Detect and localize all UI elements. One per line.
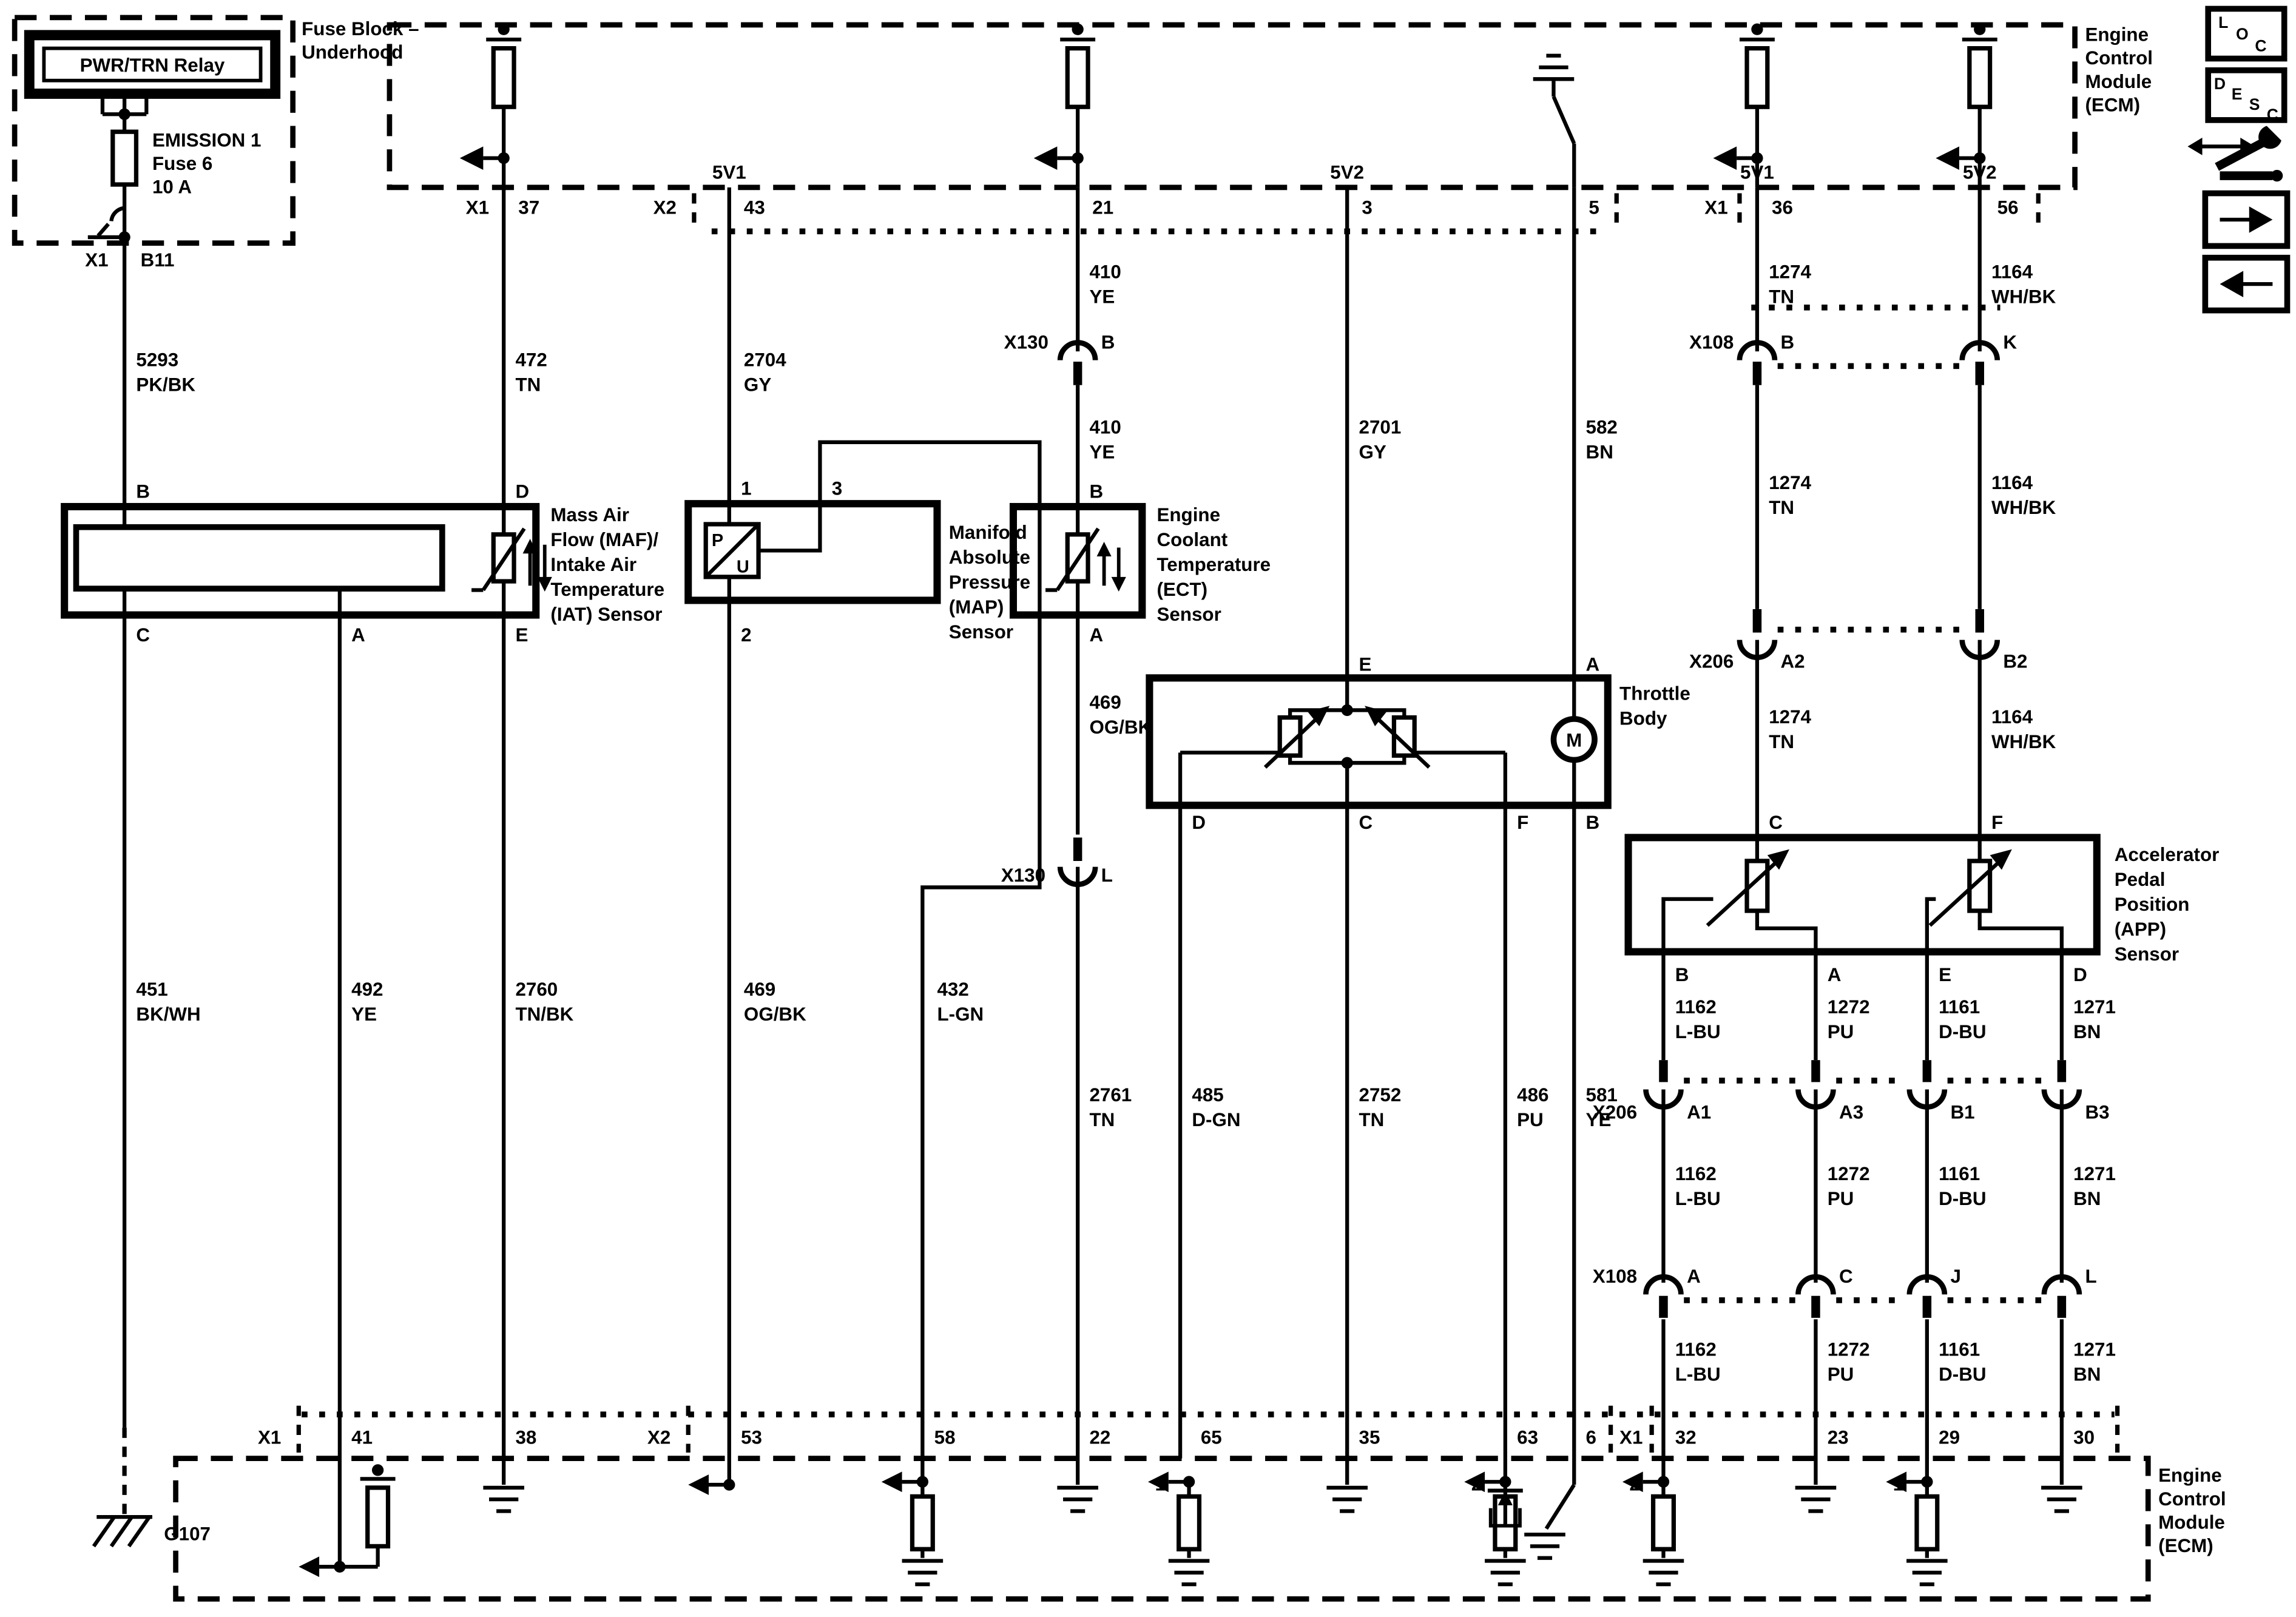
pressure-transducer-icon: P U <box>706 524 758 577</box>
desc-s: S <box>2249 95 2260 113</box>
x206-pin-b3: B3 <box>2085 1102 2109 1123</box>
x108-pin-l: L <box>2085 1266 2096 1287</box>
label-581: 581 <box>1586 1084 1618 1106</box>
fuse-label-line1: EMISSION 1 <box>152 129 261 150</box>
loc-l: L <box>2218 13 2228 32</box>
ecm-ground-38 <box>483 1488 524 1511</box>
rail-5v2-right: 5V2 <box>1963 161 1997 183</box>
map-sensor: P U 1 3 2 Manifold Absolute Pressure (MA… <box>688 478 1030 646</box>
label-2760-color: TN/BK <box>515 1004 573 1025</box>
ecm-bot-pin22: 22 <box>1089 1426 1110 1448</box>
maf-pin-a: A <box>351 624 365 646</box>
label-1272a-color: PU <box>1828 1021 1854 1042</box>
x206-name: X206 <box>1689 650 1734 672</box>
label-2760: 2760 <box>515 979 558 1000</box>
throttle-pin-a: A <box>1586 653 1600 675</box>
x130-b-name: X130 <box>1004 331 1048 353</box>
ecm-bot-pin65: 65 <box>1201 1426 1222 1448</box>
ecm-bot-x2: X2 <box>647 1426 670 1448</box>
app-name-2: Pedal <box>2115 869 2166 890</box>
map-name-5: Sensor <box>949 621 1013 643</box>
throttle-pin-d: D <box>1192 812 1206 833</box>
label-1162c-color: L-BU <box>1675 1364 1721 1385</box>
label-1272c-color: PU <box>1828 1364 1854 1385</box>
tps-potentiometers-icon <box>1180 704 1505 769</box>
ect-sensor: B A Engine Coolant Temperature (ECT) Sen… <box>1013 481 1271 646</box>
desc-button[interactable]: D E S C <box>2208 70 2284 124</box>
map-pin-3: 3 <box>832 478 842 499</box>
label-1162a: 1162 <box>1675 996 1717 1018</box>
g107-ground: G107 <box>93 1428 211 1546</box>
ecm-5v-feed-21 <box>1034 24 1095 187</box>
tools-icon[interactable] <box>2187 126 2283 182</box>
label-492-color: YE <box>351 1004 377 1025</box>
app-potentiometer-1-icon <box>1663 849 1815 952</box>
label-581-color: YE <box>1586 1109 1612 1130</box>
label-1162b-color: L-BU <box>1675 1188 1721 1209</box>
ecm-bot-pin30: 30 <box>2073 1426 2095 1448</box>
ecm-input-32: 2 <box>1622 1471 1684 1584</box>
throttle-motor-icon: M <box>1553 719 1595 760</box>
label-1271c-color: BN <box>2073 1364 2101 1385</box>
x206-pin-a2: A2 <box>1781 650 1805 672</box>
app-sensor: C F B A E D Accelerator Pedal Position (… <box>1629 812 2220 985</box>
app-pin-e: E <box>1939 964 1951 985</box>
ect-thermistor-icon <box>1045 528 1126 592</box>
label-1271a: 1271 <box>2073 996 2116 1018</box>
label-472: 472 <box>515 349 547 370</box>
fuse-label-line3: 10 A <box>152 177 192 198</box>
x130-b-connector: X130 B <box>1004 331 1115 385</box>
ecm-top-pin3: 3 <box>1362 197 1372 218</box>
throttle-pin-f: F <box>1517 812 1528 833</box>
label-1164a: 1164 <box>1991 262 2033 283</box>
x108-pin-k: K <box>2003 331 2017 353</box>
app-name-1: Accelerator <box>2115 844 2220 865</box>
label-1164c-color: WH/BK <box>1991 731 2056 752</box>
map-name-3: Pressure <box>949 572 1030 593</box>
label-1161a: 1161 <box>1939 996 1980 1018</box>
desc-c: C <box>2267 106 2278 124</box>
throttle-box <box>1149 678 1607 805</box>
label-1161c-color: D-BU <box>1939 1364 1986 1385</box>
desc-d: D <box>2214 75 2226 93</box>
emission1-fuse-icon <box>113 132 137 184</box>
loc-c: C <box>2255 36 2266 55</box>
label-2761-color: TN <box>1089 1109 1115 1130</box>
label-432: 432 <box>937 979 968 1000</box>
relay-terminal-icon <box>103 93 146 132</box>
label-469-ect-color: OG/BK <box>1089 717 1152 738</box>
label-1161a-color: D-BU <box>1939 1021 1986 1042</box>
app-pin-c: C <box>1769 812 1783 833</box>
label-410b: 410 <box>1089 416 1121 437</box>
x130-l-pin: L <box>1101 865 1113 886</box>
ecm-bot-pin32: 32 <box>1675 1426 1697 1448</box>
ecm-bot-pin23: 23 <box>1828 1426 1849 1448</box>
maf-iat-sensor: B D C A E Mass Air Flow (MAF)/ Intake Ai… <box>64 481 664 646</box>
label-410a: 410 <box>1089 262 1121 283</box>
fuse-block-pin-label: B11 <box>141 249 175 271</box>
label-1274c-color: TN <box>1769 731 1794 752</box>
ecm-input-29: 1 <box>1886 1471 1947 1584</box>
label-469-ect: 469 <box>1089 692 1121 713</box>
ecm-input-65: 1 <box>1148 1471 1209 1584</box>
x206-pin-b1: B1 <box>1950 1102 1974 1123</box>
ecm-bot-pin58: 58 <box>934 1426 956 1448</box>
ecm-bottom-name-2: Control <box>2158 1488 2226 1510</box>
label-2752-color: TN <box>1359 1109 1385 1130</box>
label-485: 485 <box>1192 1084 1223 1106</box>
label-5293: 5293 <box>136 349 178 370</box>
x206-low-connector: X206 A1 A3 B1 B3 <box>1593 1060 2110 1123</box>
ecm-top-name-1: Engine <box>2085 24 2149 46</box>
ect-name-5: Sensor <box>1156 604 1221 625</box>
label-451: 451 <box>136 979 167 1000</box>
map-pin-1: 1 <box>741 478 751 499</box>
iat-thermistor-icon <box>471 507 552 592</box>
ecm-top-box <box>390 25 2075 187</box>
ecm-top-pin36: 36 <box>1772 197 1793 218</box>
ecm-bot-pin38: 38 <box>515 1426 536 1448</box>
app-pin-a: A <box>1828 964 1842 985</box>
label-2704: 2704 <box>744 349 786 370</box>
ecm-top-pin43: 43 <box>744 197 765 218</box>
maf-pin-e: E <box>515 624 528 646</box>
g107-label: G107 <box>164 1524 211 1545</box>
label-451-color: BK/WH <box>136 1004 200 1025</box>
label-2701-color: GY <box>1359 441 1386 462</box>
app-name-4: (APP) <box>2115 919 2166 940</box>
map-name-4: (MAP) <box>949 596 1004 618</box>
x130-l-connector: X130 L <box>1001 837 1113 885</box>
x130-l-name: X130 <box>1001 865 1045 886</box>
label-1161c: 1161 <box>1939 1339 1980 1360</box>
ecm-ground-switch-top-icon <box>1533 56 1575 187</box>
ecm-top-pin56: 56 <box>1997 197 2019 218</box>
label-1164b-color: WH/BK <box>1991 497 2056 518</box>
ecm-ground-35 <box>1326 1488 1368 1511</box>
ecm-bot-pin6: 6 <box>1586 1426 1596 1448</box>
x108-pin-c: C <box>1839 1266 1853 1287</box>
label-1162b: 1162 <box>1675 1163 1717 1184</box>
label-2704-color: GY <box>744 374 771 395</box>
ecm-input-58 <box>882 1471 943 1584</box>
x108-pin-j: J <box>1950 1266 1960 1287</box>
ect-name-1: Engine <box>1156 504 1220 525</box>
ecm-ground-23 <box>1795 1488 1837 1511</box>
ecm-bot-pin29: 29 <box>1939 1426 1960 1448</box>
x206-pin-b2: B2 <box>2003 650 2027 672</box>
label-472-color: TN <box>515 374 541 395</box>
throttle-name-2: Body <box>1619 708 1667 729</box>
map-name-2: Absolute <box>949 547 1030 568</box>
maf-name-3: Intake Air <box>550 554 636 575</box>
loc-o: O <box>2236 25 2249 43</box>
wire-labels: 5293PK/BK 472TN 2704GY 410YE 410YE 2701G… <box>136 262 2116 1385</box>
label-432-color: L-GN <box>937 1004 984 1025</box>
label-2761: 2761 <box>1089 1084 1132 1106</box>
motor-m-letter: M <box>1566 730 1582 751</box>
ecm-bottom-name-1: Engine <box>2158 1465 2222 1486</box>
ecm-input-63: 2 <box>1464 1471 1525 1584</box>
label-1271b-color: BN <box>2073 1188 2101 1209</box>
ecm-top-name-4: (ECM) <box>2085 94 2140 115</box>
fuse-label-line2: Fuse 6 <box>152 153 212 174</box>
ecm-ground-22 <box>1057 1488 1098 1511</box>
app-name-5: Sensor <box>2115 944 2179 965</box>
ecm-top-name-2: Control <box>2085 47 2152 69</box>
maf-pin-b: B <box>136 481 150 502</box>
label-1271c: 1271 <box>2073 1339 2116 1360</box>
maf-name-5: (IAT) Sensor <box>550 604 662 625</box>
label-1162c: 1162 <box>1675 1339 1717 1360</box>
fuse-block-conn-label: X1 <box>85 249 108 271</box>
ecm-top-x1: X1 <box>466 197 489 218</box>
rail-5v1-left: 5V1 <box>712 161 746 183</box>
label-410b-color: YE <box>1089 441 1115 462</box>
app-pin-d: D <box>2073 964 2087 985</box>
ect-pin-b: B <box>1089 481 1103 502</box>
label-2752: 2752 <box>1359 1084 1402 1106</box>
label-492: 492 <box>351 979 383 1000</box>
throttle-body: Throttle Body M E A D C F B <box>1149 653 1690 833</box>
x108-low-connector: X108 A C J L <box>1593 1266 2097 1318</box>
ect-name-4: (ECT) <box>1156 579 1207 600</box>
ecm-top-name-3: Module <box>2085 71 2152 92</box>
map-u-letter: U <box>737 558 749 577</box>
maf-pin-c: C <box>136 624 150 646</box>
ecm-bot-pin63: 63 <box>1517 1426 1538 1448</box>
ecm-bottom-name-3: Module <box>2158 1511 2225 1533</box>
ecm-bot-pin41: 41 <box>351 1426 373 1448</box>
ecm-bot-x1: X1 <box>258 1426 281 1448</box>
ecm-bot-pin35: 35 <box>1359 1426 1380 1448</box>
ecm-input-41 <box>299 1464 395 1577</box>
maf-name-1: Mass Air <box>550 504 629 525</box>
x206-pin-a1: A1 <box>1687 1102 1711 1123</box>
ecm-top-x1r: X1 <box>1704 197 1727 218</box>
rail-5v1-right: 5V1 <box>1740 161 1774 183</box>
ecm-top-pin37: 37 <box>518 197 539 218</box>
throttle-pin-c: C <box>1359 812 1373 833</box>
label-1164b: 1164 <box>1991 472 2033 493</box>
label-2701: 2701 <box>1359 416 1402 437</box>
label-469-map: 469 <box>744 979 775 1000</box>
maf-element-box <box>76 527 442 589</box>
maf-box <box>64 507 536 615</box>
pwr-trn-relay-label: PWR/TRN Relay <box>80 55 225 76</box>
label-582-color: BN <box>1586 441 1613 462</box>
ect-name-3: Temperature <box>1156 554 1271 575</box>
ecm-bot-x1r: X1 <box>1619 1426 1643 1448</box>
label-1161b: 1161 <box>1939 1163 1980 1184</box>
label-486: 486 <box>1517 1084 1548 1106</box>
x130-b-pin: B <box>1101 331 1115 353</box>
next-button[interactable] <box>2205 194 2287 246</box>
x108-name: X108 <box>1689 331 1734 353</box>
label-1274a-color: TN <box>1769 286 1794 308</box>
x108-pin-b: B <box>1781 331 1795 353</box>
ecm-ground-30 <box>2041 1488 2082 1511</box>
ecm-top-pin21: 21 <box>1092 197 1113 218</box>
app-potentiometer-2-icon <box>1927 849 2062 952</box>
label-582: 582 <box>1586 416 1618 437</box>
label-1274c: 1274 <box>1769 706 1811 727</box>
label-1164c: 1164 <box>1991 706 2033 727</box>
loc-button[interactable]: L O C <box>2208 8 2284 58</box>
fuse-block-title-line1: Fuse Block – <box>302 18 419 39</box>
x108-top-connector: X108 B K <box>1689 331 2017 385</box>
app-pin-f: F <box>1991 812 2003 833</box>
label-469-map-color: OG/BK <box>744 1004 806 1025</box>
ecm-top-pin5: 5 <box>1589 197 1599 218</box>
back-button[interactable] <box>2205 258 2287 311</box>
label-485-color: D-GN <box>1192 1109 1240 1130</box>
x108-low-name: X108 <box>1593 1266 1637 1287</box>
maf-name-2: Flow (MAF)/ <box>550 529 658 550</box>
label-410a-color: YE <box>1089 286 1115 308</box>
ecm-bottom-name-4: (ECM) <box>2158 1535 2213 1556</box>
app-name-3: Position <box>2115 894 2190 915</box>
x108-pin-a: A <box>1687 1266 1701 1287</box>
label-1272c: 1272 <box>1828 1339 1870 1360</box>
toolbar: L O C D E S C <box>2187 8 2287 310</box>
label-1271a-color: BN <box>2073 1021 2101 1042</box>
app-box <box>1629 837 2097 951</box>
label-1272b-color: PU <box>1828 1188 1854 1209</box>
throttle-pin-e: E <box>1359 653 1372 675</box>
rail-5v2-left: 5V2 <box>1330 161 1364 183</box>
label-486-color: PU <box>1517 1109 1544 1130</box>
app-pin-b: B <box>1675 964 1689 985</box>
wiring-diagram-canvas: Fuse Block – Underhood PWR/TRN Relay EMI… <box>0 0 2296 1616</box>
desc-e: E <box>2232 85 2243 103</box>
x206-pin-a3: A3 <box>1839 1102 1863 1123</box>
label-1272a: 1272 <box>1828 996 1870 1018</box>
ecm-5v-feed-37 <box>460 24 521 187</box>
ect-pin-a: A <box>1089 624 1103 646</box>
map-pin-2: 2 <box>741 624 751 646</box>
app-harness-wires <box>1663 952 2061 1485</box>
label-1274b-color: TN <box>1769 497 1794 518</box>
maf-name-4: Temperature <box>550 579 664 600</box>
ecm-top-x2: X2 <box>653 197 677 218</box>
maf-pin-d: D <box>515 481 529 502</box>
label-1162a-color: L-BU <box>1675 1021 1721 1042</box>
label-1164a-color: WH/BK <box>1991 286 2056 308</box>
label-1271b: 1271 <box>2073 1163 2116 1184</box>
map-p-letter: P <box>712 531 723 550</box>
fuse-block-underhood: Fuse Block – Underhood PWR/TRN Relay EMI… <box>15 18 419 243</box>
x206-mid-connector: X206 A2 B2 <box>1689 609 2027 672</box>
throttle-name-1: Throttle <box>1619 683 1690 704</box>
ecm-bot-pin53: 53 <box>741 1426 762 1448</box>
label-1274b: 1274 <box>1769 472 1811 493</box>
label-1274a: 1274 <box>1769 262 1811 283</box>
ect-name-2: Coolant <box>1156 529 1227 550</box>
throttle-pin-b: B <box>1586 812 1600 833</box>
label-1161b-color: D-BU <box>1939 1188 1986 1209</box>
label-5293-color: PK/BK <box>136 374 195 395</box>
label-1272b: 1272 <box>1828 1163 1870 1184</box>
